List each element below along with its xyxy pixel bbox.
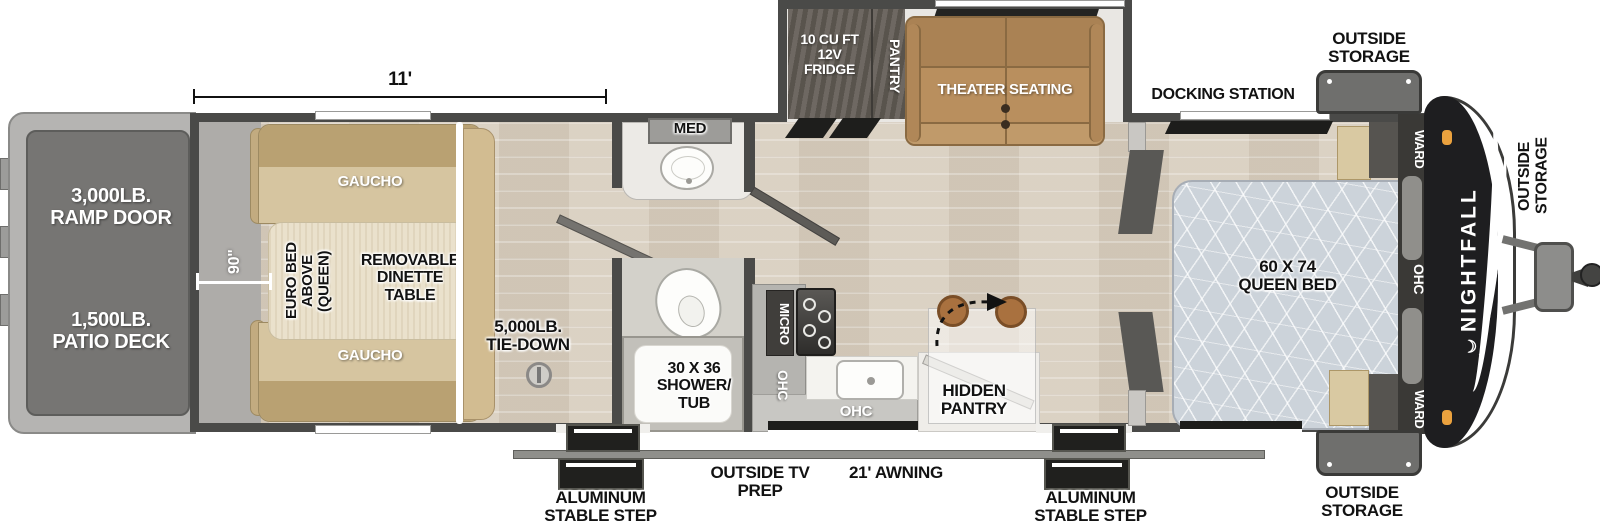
theater-seating-label: THEATER SEATING xyxy=(910,82,1100,98)
kitchen-window xyxy=(768,421,918,430)
dim-line-11ft xyxy=(193,96,607,98)
hidden-pantry-label: HIDDEN PANTRY xyxy=(912,382,1036,419)
dinette-table-divider xyxy=(456,122,463,424)
bedroom-window xyxy=(1180,421,1302,429)
garage-window xyxy=(315,111,431,120)
ohc-kitchen-lower-label: OHC xyxy=(824,404,888,420)
wardrobe-cabinet xyxy=(1369,122,1399,178)
awning-label: 21' AWNING xyxy=(826,464,966,482)
dim-tick xyxy=(193,89,195,104)
tie-down-label: 5,000LB. TIE-DOWN xyxy=(462,318,594,355)
crescent-icon: ☾ xyxy=(1460,332,1479,355)
tie-down-anchor-icon xyxy=(526,362,552,388)
ohc-bedroom-label: OHC xyxy=(1400,248,1426,310)
dim-line-90in xyxy=(196,281,272,284)
clearance-light-icon xyxy=(1442,130,1452,145)
stable-step-right-label: ALUMINUM STABLE STEP xyxy=(1008,489,1173,526)
docking-station-label: DOCKING STATION xyxy=(1138,86,1308,103)
fridge-label: 10 CU FT 12V FRIDGE xyxy=(788,32,871,77)
garage-width-dim: 90" xyxy=(226,242,250,282)
nightstand xyxy=(1329,370,1369,426)
bedroom-wall xyxy=(1128,122,1146,152)
outside-storage-top-label: OUTSIDE STORAGE xyxy=(1305,30,1433,67)
bath-wall xyxy=(612,258,622,432)
pantry-swing-arrow-icon xyxy=(923,284,1018,349)
docking-window xyxy=(1180,111,1330,120)
propane-cover xyxy=(1534,242,1574,312)
pantry-label: PANTRY xyxy=(874,26,902,106)
ramp-door-panel xyxy=(26,130,190,416)
dim-tick xyxy=(196,273,199,290)
stable-step-left-label: ALUMINUM STABLE STEP xyxy=(518,489,683,526)
euro-bed-label: EURO BED ABOVE (QUEEN) xyxy=(284,230,348,332)
outside-storage-front-label: OUTSIDE STORAGE xyxy=(1516,126,1562,226)
dinette-label: REMOVABLE DINETTE TABLE xyxy=(352,252,468,304)
slideout-window xyxy=(935,0,1125,7)
pillow xyxy=(1402,308,1422,384)
gaucho-bottom-label: GAUCHO xyxy=(300,348,440,364)
med-label: MED xyxy=(648,121,732,137)
garage-window xyxy=(315,425,431,434)
hitch-ball-icon xyxy=(1580,263,1600,287)
garage-length-dim: 11' xyxy=(370,70,430,91)
ramp-door-label: 3,000LB. RAMP DOOR xyxy=(36,186,186,229)
wardrobe-cabinet xyxy=(1369,374,1399,432)
dinette-table-top xyxy=(463,128,495,420)
docking-station-shelf xyxy=(1165,121,1333,134)
ward-top-label: WARD xyxy=(1400,118,1426,180)
bath-wall xyxy=(744,122,755,192)
clearance-light-icon xyxy=(1442,410,1452,425)
kitchen-window-sill xyxy=(768,430,918,433)
brand-name: NIGHTFALL xyxy=(1458,187,1481,332)
ohc-kitchen-upper-label: OHC xyxy=(766,362,790,408)
queen-bed-label: 60 X 74 QUEEN BED xyxy=(1205,258,1370,295)
cupholder-icon xyxy=(1001,104,1010,113)
outside-storage-box xyxy=(1316,430,1422,476)
rv-floorplan: 3,000LB. RAMP DOOR 1,500LB. PATIO DECK 1… xyxy=(0,0,1600,531)
bath-sink-icon xyxy=(660,146,714,190)
gaucho-top-label: GAUCHO xyxy=(300,174,440,190)
bath-wall xyxy=(612,122,622,188)
shower-tub-label: 30 X 36 SHOWER/ TUB xyxy=(634,360,754,412)
outside-tv-prep-label: OUTSIDE TV PREP xyxy=(690,464,830,501)
bedroom-wall xyxy=(1128,390,1146,426)
bedroom-window-sill xyxy=(1180,429,1302,432)
outside-storage-box xyxy=(1316,70,1422,114)
nightstand xyxy=(1337,126,1371,180)
kitchen-sink-icon xyxy=(836,360,904,400)
dim-tick xyxy=(605,89,607,104)
brand-logo: ☾NIGHTFALL xyxy=(1436,148,1478,394)
micro-label: MICRO xyxy=(769,296,791,352)
stove-icon xyxy=(796,288,836,356)
patio-deck-label: 1,500LB. PATIO DECK xyxy=(36,310,186,353)
dim-tick xyxy=(269,273,272,290)
cupholder-icon xyxy=(1001,120,1010,129)
outside-storage-bottom-label: OUTSIDE STORAGE xyxy=(1298,484,1426,521)
